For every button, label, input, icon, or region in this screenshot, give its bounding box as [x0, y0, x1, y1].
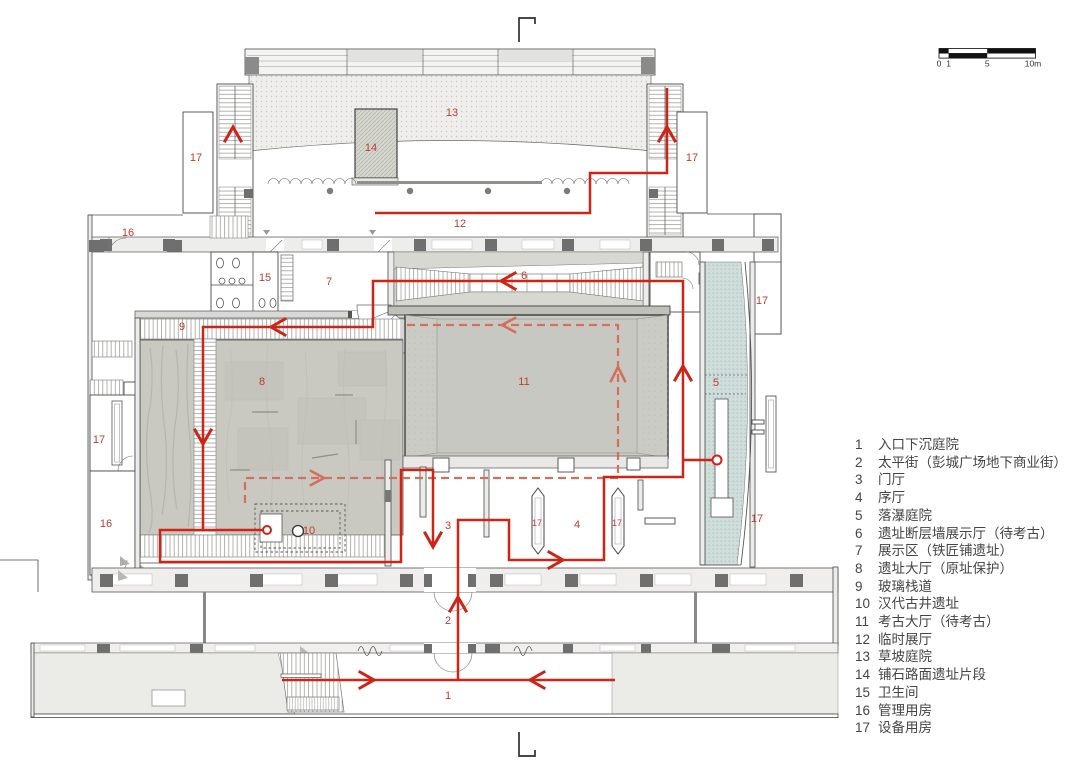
legend-item-label: 入口下沉庭院 [878, 436, 959, 454]
stair-tower-left [217, 84, 253, 237]
legend-item-number: 3 [855, 471, 878, 489]
room-number-label: 2 [445, 615, 451, 627]
room-number-label: 17 [686, 152, 698, 164]
room-number-label: 17 [532, 518, 542, 528]
well-circle [293, 526, 304, 537]
room-number-label: 14 [365, 142, 377, 154]
scale-bar-labels: 01510m [937, 59, 1042, 69]
legend-item-label: 卫生间 [878, 684, 919, 702]
room-number-label: 10 [303, 525, 315, 537]
room-number-label: 8 [259, 376, 265, 388]
legend-item: 5落瀑庭院 [855, 507, 1067, 525]
legend-item-label: 序厅 [878, 489, 905, 507]
room-number-label: 17 [751, 513, 763, 525]
legend-item-number: 6 [855, 525, 878, 543]
south-walls [385, 456, 668, 566]
roof-louver-band [245, 49, 655, 75]
room-number-label: 17 [93, 434, 105, 446]
legend-item-number: 14 [855, 666, 878, 684]
legend-item-label: 太平街（彭城广场地下商业街） [878, 454, 1067, 472]
room-number-label: 4 [574, 519, 580, 531]
scale-tick-label: 5 [985, 59, 990, 69]
legend-item-label: 草坡庭院 [878, 648, 932, 666]
scale-bar: 01510m [937, 49, 1042, 69]
legend-item-number: 5 [855, 507, 878, 525]
legend-item-label: 遗址断层墙展示厅（待考古） [878, 525, 1054, 543]
legend-item-label: 门厅 [878, 471, 905, 489]
legend-item-label: 遗址大厅（原址保护） [878, 560, 1013, 578]
legend-item: 4序厅 [855, 489, 1067, 507]
legend-item: 12临时展厅 [855, 631, 1067, 649]
room-number-label: 5 [713, 377, 719, 389]
section-mark-bottom [519, 732, 535, 756]
legend-item-number: 9 [855, 578, 878, 596]
room-number-label: 17 [190, 152, 202, 164]
legend-item: 10汉代古井遗址 [855, 595, 1067, 613]
glazing-scallops [268, 179, 629, 195]
legend-item-number: 11 [855, 613, 878, 631]
route-endpoint-courtyard [713, 456, 722, 465]
room-number-label: 16 [100, 518, 112, 530]
legend-item: 13草坡庭院 [855, 648, 1067, 666]
legend-item: 16管理用房 [855, 702, 1067, 720]
floor-plan-page: 01510m 131417171216157617981151710317417… [0, 0, 1080, 775]
legend-item-number: 13 [855, 648, 878, 666]
legend-item: 17设备用房 [855, 719, 1067, 737]
room-number-label: 15 [259, 272, 271, 284]
legend-item-number: 15 [855, 684, 878, 702]
scale-tick-label: 1 [946, 59, 951, 69]
legend-item: 15卫生间 [855, 684, 1067, 702]
legend-item-number: 17 [855, 719, 878, 737]
legend-item-number: 4 [855, 489, 878, 507]
room-number-label: 1 [445, 690, 451, 702]
legend-item: 6遗址断层墙展示厅（待考古） [855, 525, 1067, 543]
room-number-label: 17 [756, 295, 768, 307]
room-number-label: 3 [445, 520, 451, 532]
west-wing [90, 318, 147, 575]
legend-item: 11考古大厅（待考古） [855, 613, 1067, 631]
room-8-site-hall [140, 338, 403, 535]
legend-item-label: 汉代古井遗址 [878, 595, 959, 613]
legend-item-label: 管理用房 [878, 702, 932, 720]
room-number-label: 17 [612, 518, 622, 528]
legend-item-number: 1 [855, 436, 878, 454]
room-15-toilets [211, 252, 293, 316]
scale-tick-label: 0 [937, 59, 942, 69]
room-top-right [754, 214, 781, 334]
room-number-label: 7 [326, 276, 332, 288]
legend-item-number: 2 [855, 454, 878, 472]
section-mark-top [519, 18, 535, 42]
legend-item: 8遗址大厅（原址保护） [855, 560, 1067, 578]
legend-item-number: 8 [855, 560, 878, 578]
legend-item-label: 玻璃栈道 [878, 578, 932, 596]
legend-item-label: 临时展厅 [878, 631, 932, 649]
legend-item-number: 7 [855, 542, 878, 560]
legend-item: 9玻璃栈道 [855, 578, 1067, 596]
legend-item: 3门厅 [855, 471, 1067, 489]
room-number-label: 9 [179, 321, 185, 333]
room-5-waterfall-courtyard [700, 262, 752, 565]
legend-item-number: 16 [855, 702, 878, 720]
legend-item-label: 设备用房 [878, 719, 932, 737]
legend-item-label: 铺石路面遗址片段 [878, 666, 986, 684]
room-number-label: 6 [521, 270, 527, 282]
scale-tick-label: 10m [1025, 59, 1042, 69]
legend-item: 7展示区（铁匠铺遗址） [855, 542, 1067, 560]
legend-item: 14铺石路面遗址片段 [855, 666, 1067, 684]
legend-item-number: 12 [855, 631, 878, 649]
legend-item-label: 考古大厅（待考古） [878, 613, 1000, 631]
small-stair [210, 216, 248, 238]
room-number-label: 12 [454, 218, 466, 230]
legend-item: 1入口下沉庭院 [855, 436, 1067, 454]
legend-item-label: 落瀑庭院 [878, 507, 932, 525]
legend-item-label: 展示区（铁匠铺遗址） [878, 542, 1013, 560]
route-endpoint-well [263, 526, 271, 534]
room-number-label: 11 [518, 376, 529, 388]
room-number-label: 13 [446, 107, 458, 119]
room-16-west [90, 471, 135, 575]
room-number-label: 16 [122, 227, 134, 239]
legend: 1入口下沉庭院2太平街（彭城广场地下商业街）3门厅4序厅5落瀑庭院6遗址断层墙展… [855, 436, 1067, 737]
legend-item: 2太平街（彭城广场地下商业街） [855, 454, 1067, 472]
legend-item-number: 10 [855, 595, 878, 613]
